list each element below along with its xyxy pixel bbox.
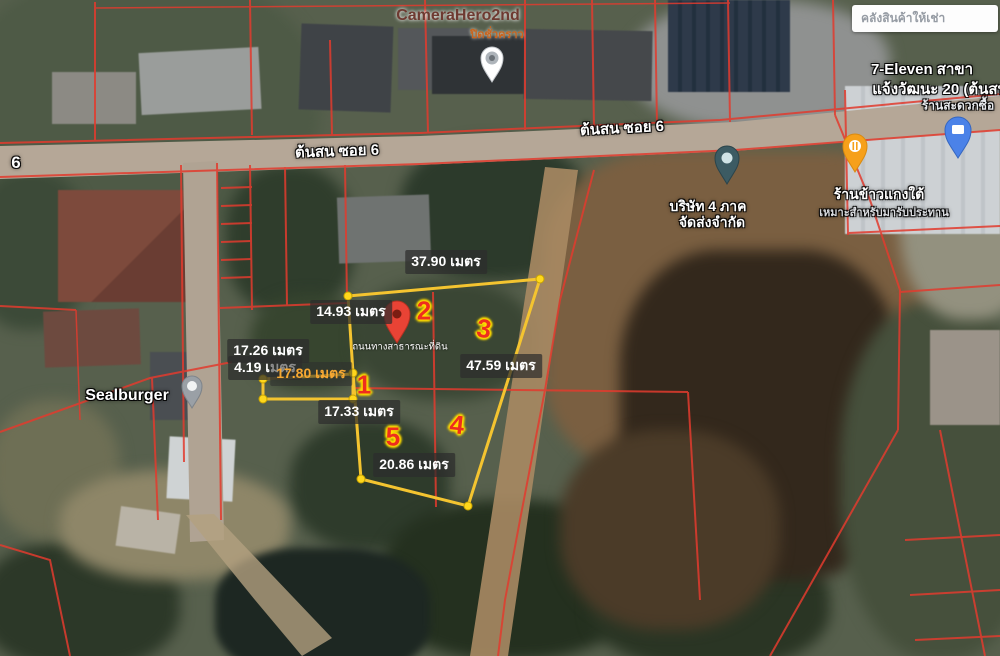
access-road-note: ถนนทางสาธารณะที่ดิน — [352, 340, 447, 355]
shop-pin[interactable] — [945, 117, 971, 158]
dirt-road — [470, 167, 578, 656]
measurement-strip: 17.80 เมตร — [270, 362, 352, 386]
poi-company-line2: จัดส่งจำกัด — [679, 212, 745, 234]
dirt-path — [186, 514, 332, 656]
street-label-soi6-right: ต้นสน ซอย 6 — [579, 114, 664, 142]
street-label-6: 6 — [11, 153, 20, 173]
poi-curry-shop-subtitle: เหมาะสำหรับมารับประทาน — [819, 203, 948, 221]
measurement-upper-left: 14.93 เมตร — [310, 300, 392, 324]
plot-marker-2: 2 — [417, 296, 431, 327]
poi-seven-eleven-line3: ร้านสะดวกซื้อ — [922, 97, 994, 116]
plot-marker-1: 1 — [357, 370, 371, 401]
poi-sealburger[interactable]: Sealburger — [85, 387, 169, 405]
poi-camera-hero-status: ปิดชั่วคราว — [470, 25, 523, 43]
warehouse-ad-card[interactable]: คลังสินค้าให้เช่า — [852, 5, 998, 32]
measurement-right: 47.59 เมตร — [460, 354, 542, 378]
street-label-soi6-left: ต้นสน ซอย 6 — [295, 138, 380, 165]
measurement-bottom: 20.86 เมตร — [373, 453, 455, 477]
poi-camera-hero[interactable]: CameraHero2nd — [396, 7, 520, 25]
white-place-pin[interactable] — [481, 47, 503, 82]
measurement-middle: 17.33 เมตร — [318, 400, 400, 424]
company-pin[interactable] — [715, 146, 739, 184]
map-overlay — [0, 0, 1000, 656]
satellite-map[interactable]: ต้นสน ซอย 6 ต้นสน ซอย 6 6 CameraHero2nd … — [0, 0, 1000, 656]
plot-marker-5: 5 — [386, 422, 400, 453]
warehouse-ad-text: คลังสินค้าให้เช่า — [852, 5, 998, 32]
measurement-top: 37.90 เมตร — [405, 250, 487, 274]
